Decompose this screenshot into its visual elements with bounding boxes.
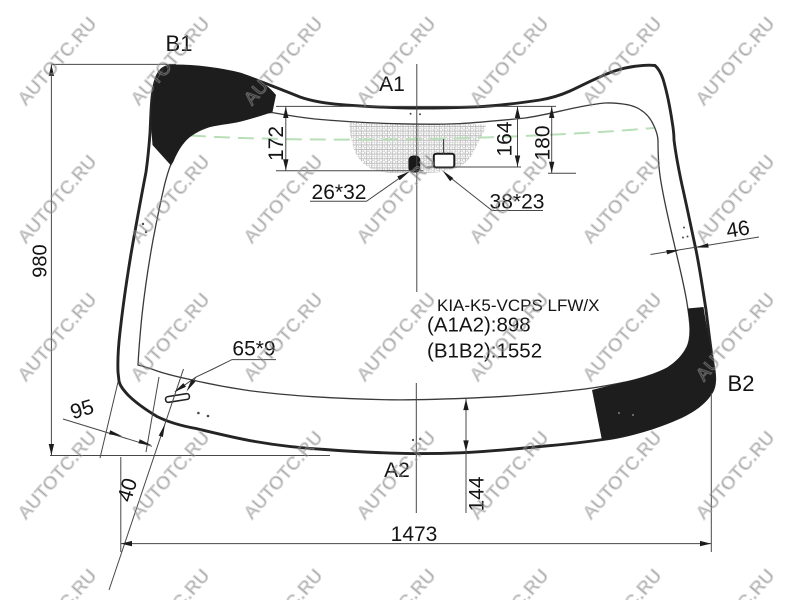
svg-text:1473: 1473 <box>391 523 438 546</box>
svg-text:B2: B2 <box>728 371 755 396</box>
svg-text:172: 172 <box>265 126 288 161</box>
svg-text:26*32: 26*32 <box>312 181 367 204</box>
svg-text:164: 164 <box>494 121 517 156</box>
svg-text:980: 980 <box>30 244 52 277</box>
